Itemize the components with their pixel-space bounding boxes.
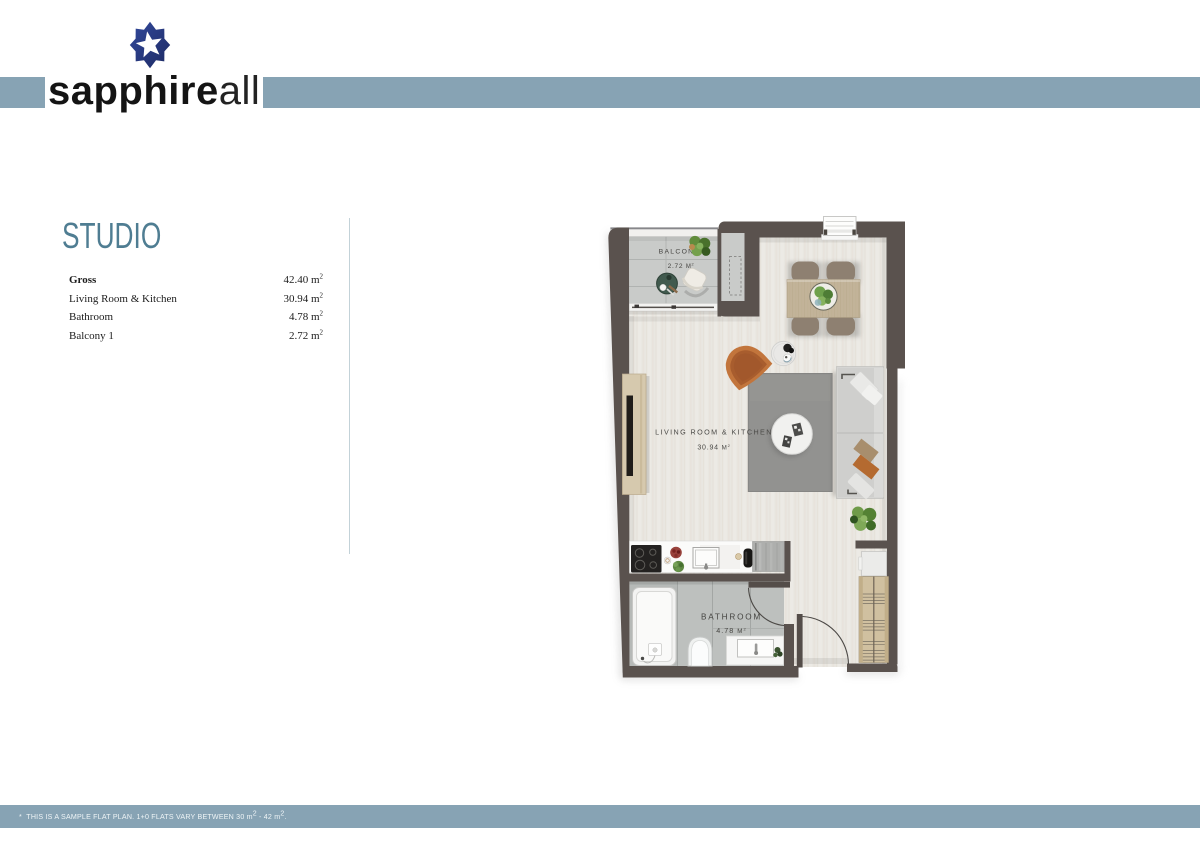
svg-text:4.78 M2: 4.78 M2	[716, 626, 746, 635]
svg-text:30.94 M2: 30.94 M2	[697, 443, 730, 452]
svg-text:LIVING ROOM & KITCHEN: LIVING ROOM & KITCHEN	[655, 428, 773, 437]
svg-text:BATHROOM: BATHROOM	[701, 613, 762, 622]
